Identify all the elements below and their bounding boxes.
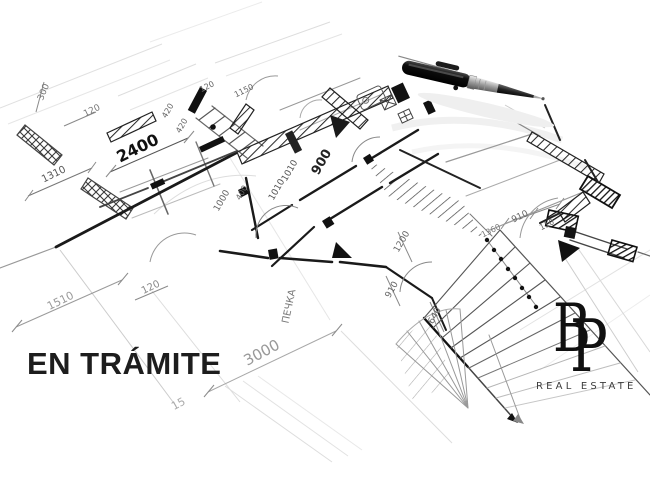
stairs [396, 230, 650, 424]
dimension-label: 1150 [233, 82, 255, 99]
dimension-label: 420 [160, 102, 175, 120]
dimension-label: 1360 [480, 222, 502, 239]
logo-letter-p: P [570, 305, 608, 389]
dimension-label: 910 [510, 209, 530, 226]
pen-ball-tip [541, 97, 545, 101]
dimension-label: 1000 [212, 188, 232, 213]
dimension-label: 120 [140, 279, 162, 297]
dimension-label: 15 [169, 395, 187, 413]
dimension-label: 640 [427, 306, 444, 326]
dimension-label: ПЕЧКА [281, 288, 299, 324]
listing-image: 3001201310240042042012011501000400101010… [0, 0, 650, 488]
dimension-label: 120 [82, 103, 102, 120]
construction-lines [0, 2, 650, 462]
pen-tip-cone [497, 84, 535, 101]
dimension-label: 120 [198, 79, 216, 94]
dimension-label: 910 [384, 280, 401, 300]
dimension-label: 1310 [40, 164, 68, 185]
dimension-label: 3000 [241, 336, 283, 370]
floor-plan-sketch: 3001201310240042042012011501000400101010… [0, 0, 650, 488]
dimension-label: 1200 [392, 229, 412, 254]
dimension-label: 1010 [267, 177, 287, 202]
logo-subtitle: REAL ESTATE [536, 381, 637, 392]
status-label: EN TRÁMITE [27, 348, 221, 379]
dimension-label: 1510 [45, 289, 76, 313]
dimension-label: 300 [36, 82, 52, 102]
brand-logo: B P REAL ESTATE [536, 290, 637, 392]
dimension-label: 1010 [280, 158, 300, 183]
dimension-label: 900 [309, 147, 336, 178]
dimension-label: 420 [174, 117, 189, 135]
